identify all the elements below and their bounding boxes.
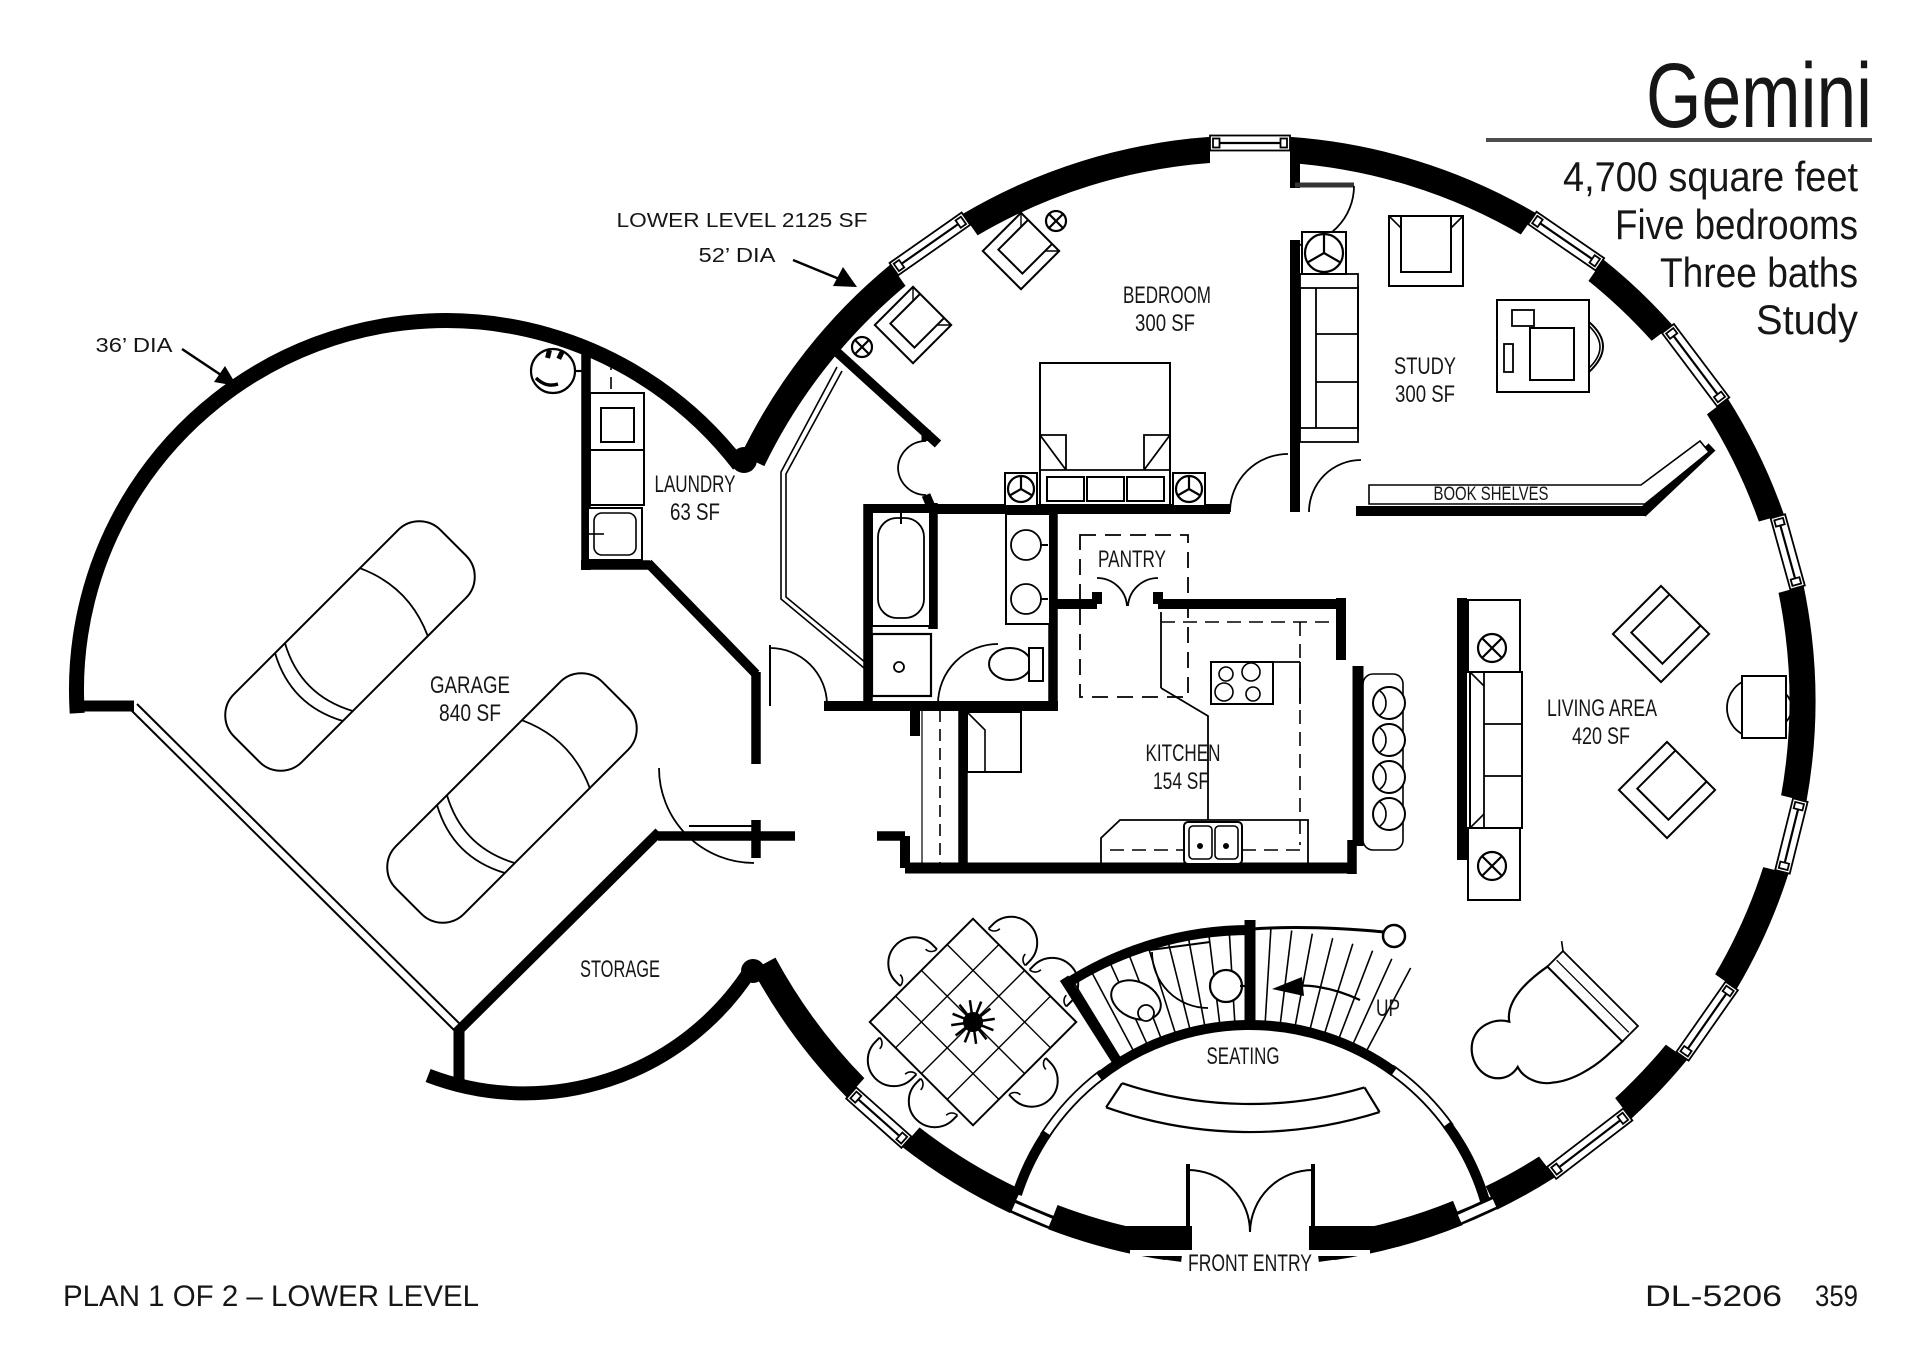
svg-text:4,700 square feet: 4,700 square feet	[1563, 153, 1858, 200]
svg-text:LIVING AREA: LIVING AREA	[1547, 695, 1657, 722]
svg-text:DL-5206: DL-5206	[1645, 1280, 1782, 1313]
svg-text:BOOK SHELVES: BOOK SHELVES	[1434, 484, 1549, 505]
svg-text:KITCHEN: KITCHEN	[1146, 740, 1221, 767]
svg-text:300 SF: 300 SF	[1135, 310, 1195, 337]
svg-text:154 SF: 154 SF	[1153, 768, 1209, 795]
svg-text:BEDROOM: BEDROOM	[1123, 282, 1211, 309]
svg-text:GARAGE: GARAGE	[430, 672, 510, 699]
svg-text:LAUNDRY: LAUNDRY	[655, 471, 736, 498]
svg-text:359: 359	[1815, 1280, 1858, 1313]
svg-text:Study: Study	[1756, 296, 1858, 343]
svg-text:SEATING: SEATING	[1207, 1043, 1280, 1070]
svg-text:STORAGE: STORAGE	[580, 956, 660, 983]
svg-text:LOWER LEVEL 2125 SF: LOWER LEVEL 2125 SF	[617, 210, 868, 232]
svg-text:Three baths: Three baths	[1660, 249, 1858, 296]
svg-text:840 SF: 840 SF	[439, 700, 501, 727]
svg-text:Five bedrooms: Five bedrooms	[1615, 201, 1858, 248]
svg-text:UP: UP	[1376, 995, 1400, 1022]
svg-text:63 SF: 63 SF	[670, 499, 720, 526]
svg-text:36’ DIA: 36’ DIA	[96, 335, 174, 357]
svg-text:STUDY: STUDY	[1394, 353, 1456, 380]
svg-text:300 SF: 300 SF	[1395, 381, 1455, 408]
svg-text:PLAN 1 OF 2 – LOWER LEVEL: PLAN 1 OF 2 – LOWER LEVEL	[63, 1280, 479, 1313]
svg-text:420 SF: 420 SF	[1572, 723, 1630, 750]
svg-text:52’ DIA: 52’ DIA	[699, 245, 777, 267]
svg-text:Gemini: Gemini	[1646, 45, 1872, 147]
svg-text:FRONT ENTRY: FRONT ENTRY	[1188, 1250, 1312, 1277]
svg-text:PANTRY: PANTRY	[1098, 546, 1166, 573]
